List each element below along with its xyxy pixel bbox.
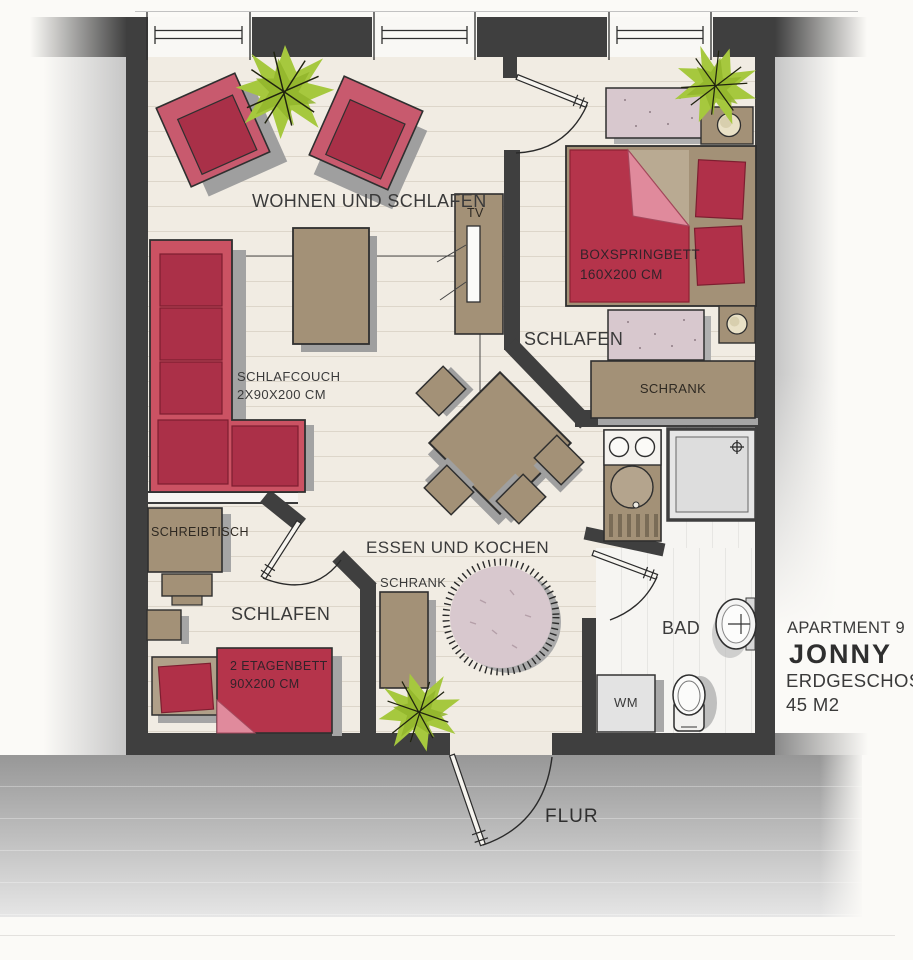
- room-label-living: WOHNEN UND SCHLAFEN: [252, 190, 487, 213]
- shower: [668, 429, 756, 520]
- room-label-dining: ESSEN UND KOCHEN: [366, 537, 549, 559]
- door-bathroom: [591, 547, 659, 620]
- nightstand-2: [719, 306, 755, 343]
- kitchen-counter: [604, 430, 661, 541]
- door-kids-room: [258, 519, 341, 585]
- door-bedroom: [515, 71, 589, 153]
- sleep-couch: [150, 240, 314, 492]
- room-label-kids: SCHLAFEN: [231, 603, 330, 626]
- tv-label: TV: [467, 205, 484, 221]
- boxspring-size-label: 160X200 CM: [580, 266, 663, 284]
- desk: [148, 508, 231, 605]
- room-label-hall: FLUR: [545, 805, 599, 830]
- room-label-bath: BAD: [662, 617, 700, 640]
- plan-drawing: [0, 0, 913, 960]
- coffee-table: [293, 228, 377, 352]
- info-area: 45 M2: [786, 693, 839, 717]
- floor-plan: WOHNEN UND SCHLAFEN SCHLAFCOUCH 2X90X200…: [0, 0, 913, 960]
- bunk-size-label: 90X200 CM: [230, 676, 300, 692]
- round-rug: [446, 562, 561, 673]
- info-floor: ERDGESCHOSS: [786, 669, 913, 693]
- bed-bench-foot: [608, 310, 711, 366]
- toilet: [673, 675, 717, 731]
- stool: [147, 610, 189, 644]
- bunk-label: 2 ETAGENBETT: [230, 658, 328, 674]
- bathroom-sink: [712, 598, 756, 658]
- wardrobe-dining: [380, 592, 436, 688]
- wardrobe-dining-label: SCHRANK: [380, 575, 446, 592]
- door-entry: [445, 753, 552, 847]
- couch-label: SCHLAFCOUCH: [237, 369, 340, 386]
- wardrobe-bedroom-label: SCHRANK: [591, 381, 755, 398]
- room-label-bedroom: SCHLAFEN: [524, 328, 623, 351]
- info-name: JONNY: [789, 637, 892, 672]
- desk-label: SCHREIBTISCH: [151, 524, 249, 540]
- washing-machine-label: WM: [597, 695, 655, 712]
- couch-size-label: 2X90X200 CM: [237, 387, 326, 404]
- window-glyphs: [147, 12, 711, 60]
- kids-armchair: [152, 657, 222, 723]
- boxspring-label: BOXSPRINGBETT: [580, 246, 700, 264]
